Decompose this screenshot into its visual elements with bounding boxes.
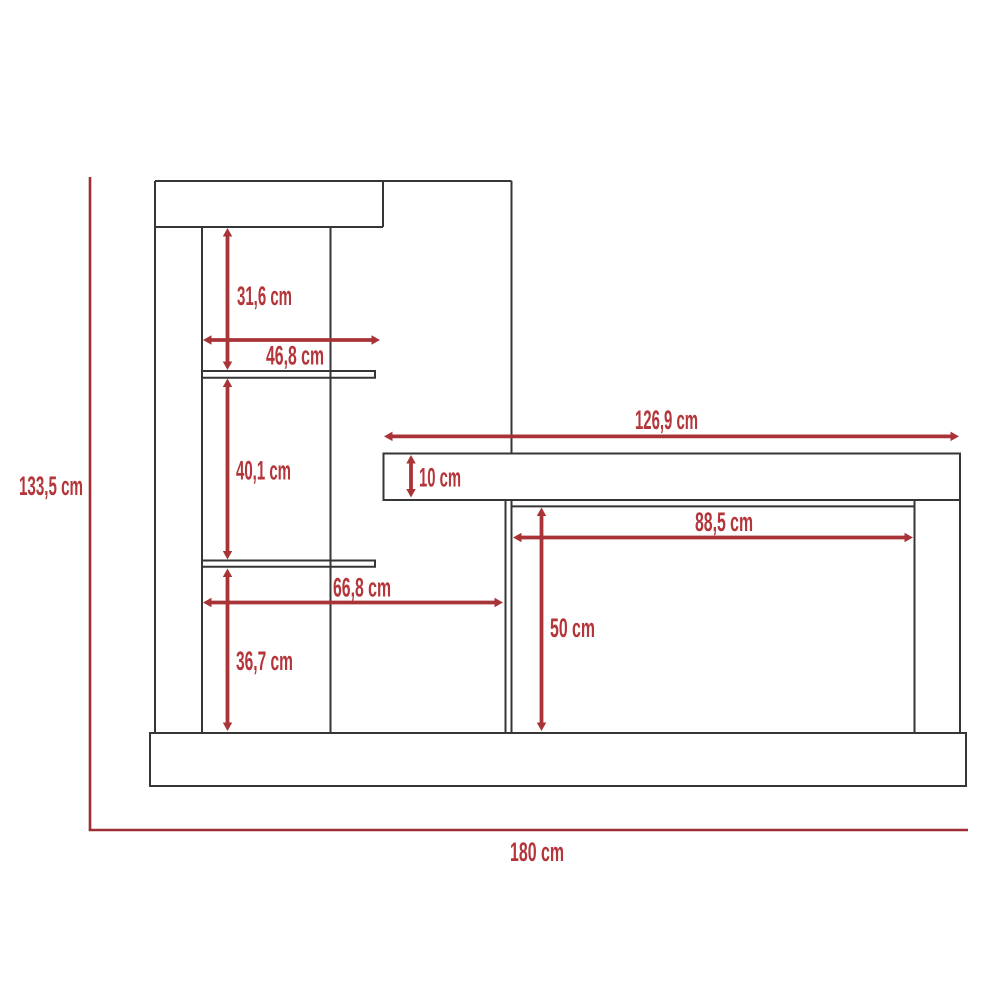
- svg-text:66,8 cm: 66,8 cm: [333, 573, 391, 603]
- svg-text:10 cm: 10 cm: [419, 463, 461, 493]
- svg-text:88,5 cm: 88,5 cm: [695, 507, 753, 537]
- svg-text:133,5 cm: 133,5 cm: [19, 471, 83, 501]
- svg-text:50 cm: 50 cm: [550, 613, 595, 643]
- svg-text:126,9 cm: 126,9 cm: [635, 405, 698, 435]
- svg-text:46,8 cm: 46,8 cm: [266, 341, 324, 371]
- svg-text:36,7 cm: 36,7 cm: [236, 646, 293, 676]
- svg-text:40,1 cm: 40,1 cm: [236, 456, 291, 486]
- svg-text:180 cm: 180 cm: [510, 837, 564, 867]
- svg-text:31,6 cm: 31,6 cm: [237, 281, 292, 311]
